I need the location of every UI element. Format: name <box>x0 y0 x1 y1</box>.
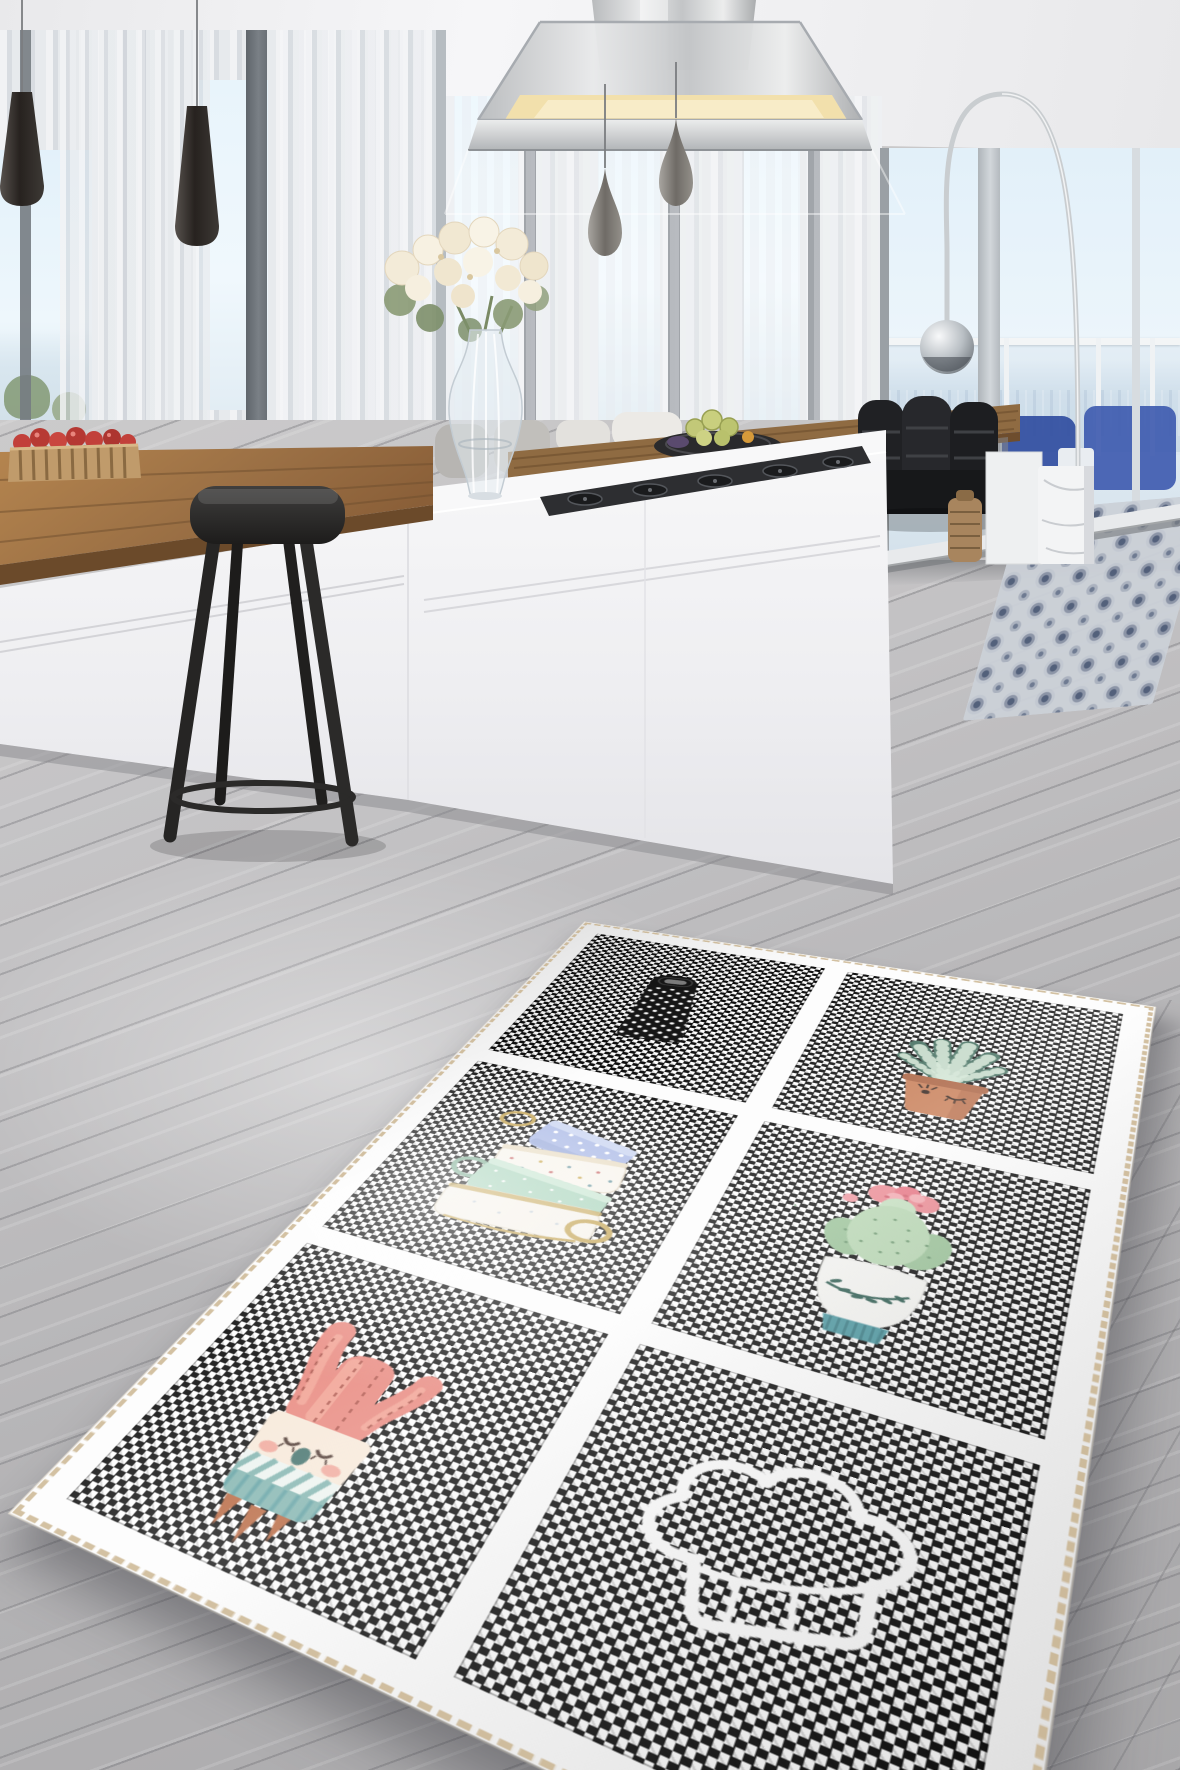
rug-light-sheen <box>10 922 1155 1770</box>
ceiling <box>0 0 1180 170</box>
window-pane <box>196 80 268 410</box>
succulent-pot-icon <box>857 1024 1037 1132</box>
window-frame <box>880 148 889 578</box>
railing-post <box>1150 338 1155 456</box>
window-mullion <box>246 30 267 585</box>
window-base-shadow <box>880 560 1180 586</box>
flower-vase <box>384 217 549 500</box>
rug-panel-grater <box>488 934 825 1103</box>
bunny-cactus-icon <box>125 1284 514 1597</box>
outdoor-furniture <box>928 430 988 470</box>
outdoor-table <box>1058 448 1094 492</box>
railing-post <box>1096 338 1101 456</box>
grater-icon <box>583 966 738 1054</box>
window-wall-back <box>446 96 882 441</box>
window-mullion <box>1132 148 1140 578</box>
window-wall-left <box>0 30 446 585</box>
rooftops <box>0 422 90 448</box>
product-rug <box>10 922 1155 1770</box>
wood-floor <box>0 420 1180 1770</box>
counters <box>0 430 893 895</box>
range-hood <box>445 0 905 214</box>
dining-set <box>435 396 1020 532</box>
city-haze <box>880 360 1180 452</box>
living-room-area-rug <box>963 494 1180 721</box>
outdoor-furniture <box>1002 416 1076 482</box>
window-mullion <box>808 96 820 441</box>
teardrop-pendant-icon <box>588 168 622 256</box>
wood-floor <box>620 1000 1180 1770</box>
rug-panel-bunny-cactus <box>66 1243 608 1660</box>
teacups-icon <box>386 1093 685 1261</box>
window-wall-right <box>880 148 1180 578</box>
bar-stool <box>150 486 386 862</box>
sheer-curtain <box>446 96 882 441</box>
tree <box>52 392 86 426</box>
kitchen-product-photo <box>0 0 1180 1770</box>
chef-hat-icon <box>525 1398 992 1770</box>
city-buildings <box>880 390 1180 436</box>
window-pane <box>598 104 660 421</box>
rug-panel-succulent <box>772 972 1123 1174</box>
railing-post <box>1004 338 1009 456</box>
sideboard-arc-lamp <box>920 94 1094 564</box>
scene-furniture <box>0 0 1180 1770</box>
teardrop-pendant-icon <box>659 118 693 206</box>
balcony-glass <box>880 345 1180 455</box>
tree <box>4 375 50 419</box>
pendant-lamps <box>0 0 693 256</box>
city-view <box>0 330 92 460</box>
window-pane <box>744 100 800 428</box>
window-mullion <box>668 96 680 441</box>
window-base <box>880 504 1180 574</box>
cactus-icon <box>744 1159 1008 1371</box>
recessed-light <box>305 40 371 64</box>
window-pane <box>454 96 518 441</box>
cone-pendant-icon <box>175 106 219 246</box>
rug-panel-chef-hat <box>453 1344 1040 1770</box>
window-mullion <box>524 96 536 441</box>
window-mullion <box>20 30 31 585</box>
apple-basket <box>8 427 141 482</box>
window-mullion <box>978 148 1000 578</box>
cone-pendant-icon <box>0 92 44 206</box>
rug-panel-cactus <box>651 1121 1091 1440</box>
window-pane <box>0 150 92 460</box>
sheer-curtain <box>280 30 446 585</box>
window-mullion <box>436 30 446 585</box>
outdoor-furniture <box>1084 406 1176 490</box>
rug-panel-teacups <box>322 1061 738 1315</box>
sheer-curtain <box>60 30 210 585</box>
balcony-rail <box>880 338 1180 345</box>
